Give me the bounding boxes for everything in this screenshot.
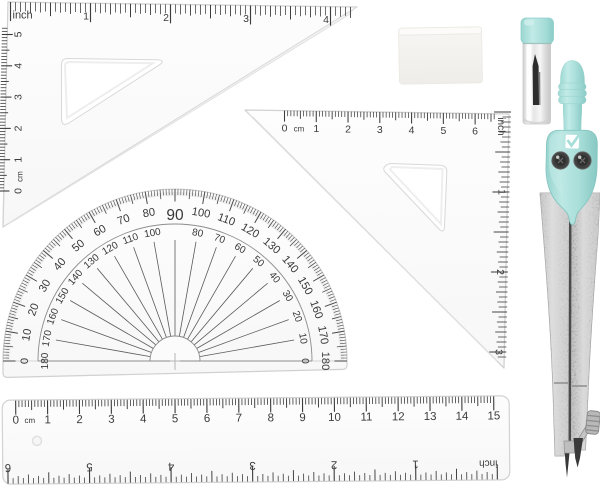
svg-text:2: 2 [76, 414, 83, 426]
svg-text:6: 6 [5, 461, 12, 473]
svg-text:2: 2 [163, 12, 169, 24]
svg-text:1: 1 [412, 458, 419, 470]
svg-text:0: 0 [13, 415, 20, 427]
svg-text:4: 4 [409, 125, 415, 137]
svg-text:1: 1 [83, 11, 89, 23]
svg-text:2: 2 [494, 269, 506, 275]
svg-text:cm: cm [24, 416, 35, 425]
svg-text:4: 4 [13, 63, 25, 69]
svg-text:cm: cm [16, 171, 25, 182]
svg-text:180: 180 [319, 352, 331, 371]
svg-text:3: 3 [492, 349, 504, 355]
svg-text:inch: inch [495, 117, 506, 135]
svg-text:7: 7 [236, 413, 243, 425]
svg-text:cm: cm [294, 124, 305, 133]
svg-text:0: 0 [13, 188, 25, 194]
svg-text:5: 5 [13, 31, 25, 37]
svg-text:4: 4 [167, 460, 174, 472]
svg-text:5: 5 [86, 460, 93, 472]
svg-text:2: 2 [13, 125, 25, 131]
svg-text:9: 9 [299, 412, 306, 424]
svg-text:5: 5 [172, 413, 179, 425]
svg-text:8: 8 [268, 412, 275, 424]
svg-text:90: 90 [166, 207, 184, 224]
svg-text:15: 15 [487, 410, 500, 422]
svg-text:3: 3 [377, 124, 383, 136]
svg-text:11: 11 [360, 411, 372, 423]
svg-text:inch: inch [13, 10, 33, 22]
svg-text:12: 12 [392, 411, 405, 423]
svg-text:6: 6 [472, 126, 478, 138]
svg-text:0: 0 [282, 123, 288, 135]
svg-text:2: 2 [345, 124, 351, 136]
svg-text:80: 80 [142, 206, 156, 220]
svg-text:1: 1 [496, 189, 508, 195]
svg-text:1: 1 [13, 157, 25, 163]
svg-text:13: 13 [424, 411, 437, 423]
svg-text:0: 0 [299, 358, 310, 364]
svg-text:5: 5 [440, 125, 446, 137]
svg-text:1: 1 [313, 123, 319, 135]
svg-text:14: 14 [456, 411, 469, 423]
svg-text:3: 3 [249, 459, 256, 471]
svg-text:1: 1 [44, 414, 51, 426]
svg-text:inch: inch [479, 457, 497, 468]
svg-text:4: 4 [140, 413, 147, 425]
svg-text:10: 10 [328, 412, 341, 424]
svg-text:3: 3 [243, 13, 249, 25]
svg-text:3: 3 [13, 94, 25, 100]
svg-text:6: 6 [204, 413, 211, 425]
svg-text:4: 4 [323, 14, 329, 26]
svg-text:2: 2 [331, 458, 338, 470]
svg-text:3: 3 [108, 414, 115, 426]
svg-text:0: 0 [19, 358, 31, 364]
svg-text:180: 180 [40, 352, 51, 369]
svg-text:10: 10 [20, 328, 34, 342]
